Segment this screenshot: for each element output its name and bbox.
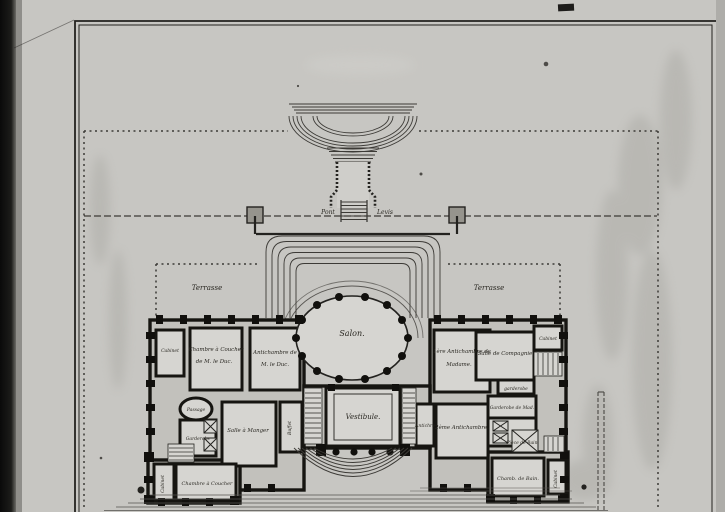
cabinet-ne-label: Cabinet (539, 336, 557, 342)
garderobe-east-label: garderobe (504, 386, 528, 392)
levis-label: Levis (376, 209, 393, 216)
salle-a-manger-room (222, 402, 276, 466)
stair-sw (168, 444, 194, 462)
antichambre-madame-label-2: Madame. (445, 362, 472, 368)
stair-center-left (304, 388, 322, 444)
salle-a-manger-label: Salle à Manger (227, 427, 269, 434)
cabinet-se-label: Cabinet (553, 470, 559, 488)
stair-se (544, 436, 564, 452)
terrace-left-label: Terrasse (192, 284, 222, 292)
cabinet-sw-label: Cabinet (160, 475, 166, 493)
deuxieme-antichambre-room (436, 404, 488, 458)
chambre-duc-label-1: Chambre à Coucher (189, 346, 244, 353)
piece-bain-label: Pièce de Bain (505, 439, 537, 446)
chambre-bain-se-label: Chamb. de Bain. (497, 476, 539, 482)
deuxieme-antichambre-label: 2ème Antichambre. (434, 424, 489, 431)
passage-label: Passage (186, 407, 206, 413)
cabinet-west-label: Cabinet (161, 348, 179, 354)
scanned-floor-plan-photo: Pont Levis Terrasse Terrasse (0, 0, 725, 512)
chambre-duc-label-2: de M. le Duc. (196, 359, 233, 365)
chambre-coucher-sw-label: Chambre à Coucher (182, 480, 234, 487)
photo-left-edge (0, 0, 16, 512)
terrace-right-label: Terrasse (474, 284, 504, 292)
salon-label: Salon. (339, 329, 364, 338)
salle-compagnie-label: Salle de Compagnie (478, 351, 533, 357)
stair-ne (534, 352, 562, 376)
antichambre-duc-label-1: Antichambre de (252, 350, 297, 356)
antichambre-duc-label-2: M. le Duc. (260, 362, 289, 368)
floor-plan-drawing: Pont Levis Terrasse Terrasse (0, 0, 725, 512)
vestibule-label: Vestibule. (346, 413, 381, 421)
buffet-label: Buffet (287, 421, 293, 436)
garderobe-madame-label: Garderobe de Mad. (490, 405, 535, 411)
pont-label: Pont (320, 209, 335, 216)
garden-bush-left (138, 487, 145, 494)
garden-bush-right (581, 484, 586, 489)
garderobe-west-label: Garderobe (186, 436, 211, 442)
antichre-label: Antichre (414, 423, 435, 429)
stair-center-right (402, 388, 416, 444)
